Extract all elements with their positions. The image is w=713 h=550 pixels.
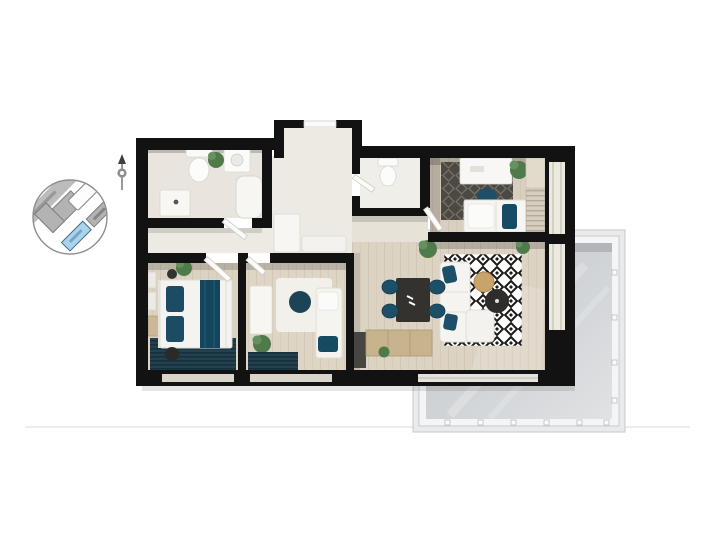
round-coffee-table-tan <box>474 272 494 292</box>
dining-chair <box>429 280 445 294</box>
kitchen-dark-counter <box>352 332 366 368</box>
daybed <box>316 288 342 358</box>
room-bedroom-mid <box>248 278 342 370</box>
wall-frame <box>148 292 156 310</box>
entry-door <box>304 121 336 127</box>
wardrobe-top-panel <box>526 158 545 188</box>
striped-wardrobe <box>526 190 545 232</box>
apartment-plan <box>136 120 575 391</box>
window-bottom-1 <box>162 374 234 382</box>
teal-pillow <box>443 313 459 331</box>
teal-pillow <box>502 204 517 229</box>
vanity-sink-icon <box>160 190 190 216</box>
wall-frame <box>148 272 156 288</box>
double-bed <box>158 280 232 348</box>
washing-machine-icon <box>224 148 250 172</box>
round-coffee-table-black <box>485 289 509 313</box>
teal-runner <box>200 280 220 348</box>
bench-cabinet <box>302 236 346 252</box>
dining-table <box>396 278 430 322</box>
striped-rug <box>248 352 298 370</box>
plant-icon <box>208 152 224 168</box>
round-nightstand <box>167 269 177 279</box>
built-in-wardrobe <box>274 214 300 252</box>
teal-pillow <box>166 316 184 342</box>
dining-chair <box>382 304 398 318</box>
window-bottom-2 <box>250 374 332 382</box>
teal-pillow <box>166 286 184 312</box>
north-compass-icon <box>117 154 126 190</box>
double-bed <box>464 200 532 232</box>
teal-pillow <box>318 336 338 352</box>
plan-drop-shadow <box>142 386 575 391</box>
window-right-1 <box>549 162 565 234</box>
floor-plan-image <box>0 0 713 550</box>
site-minimap <box>10 154 125 269</box>
dining-chair <box>382 280 398 294</box>
wood-sideboard <box>366 330 432 356</box>
window-right-2 <box>549 244 565 330</box>
bathtub-icon <box>236 176 262 218</box>
desk <box>460 158 512 184</box>
round-pouf <box>165 347 179 361</box>
white-dresser-desk <box>250 286 272 334</box>
room-vestibule-floor <box>284 128 352 158</box>
dining-chair <box>429 304 445 318</box>
plant-icon <box>379 347 390 358</box>
teal-pouf <box>289 291 311 313</box>
